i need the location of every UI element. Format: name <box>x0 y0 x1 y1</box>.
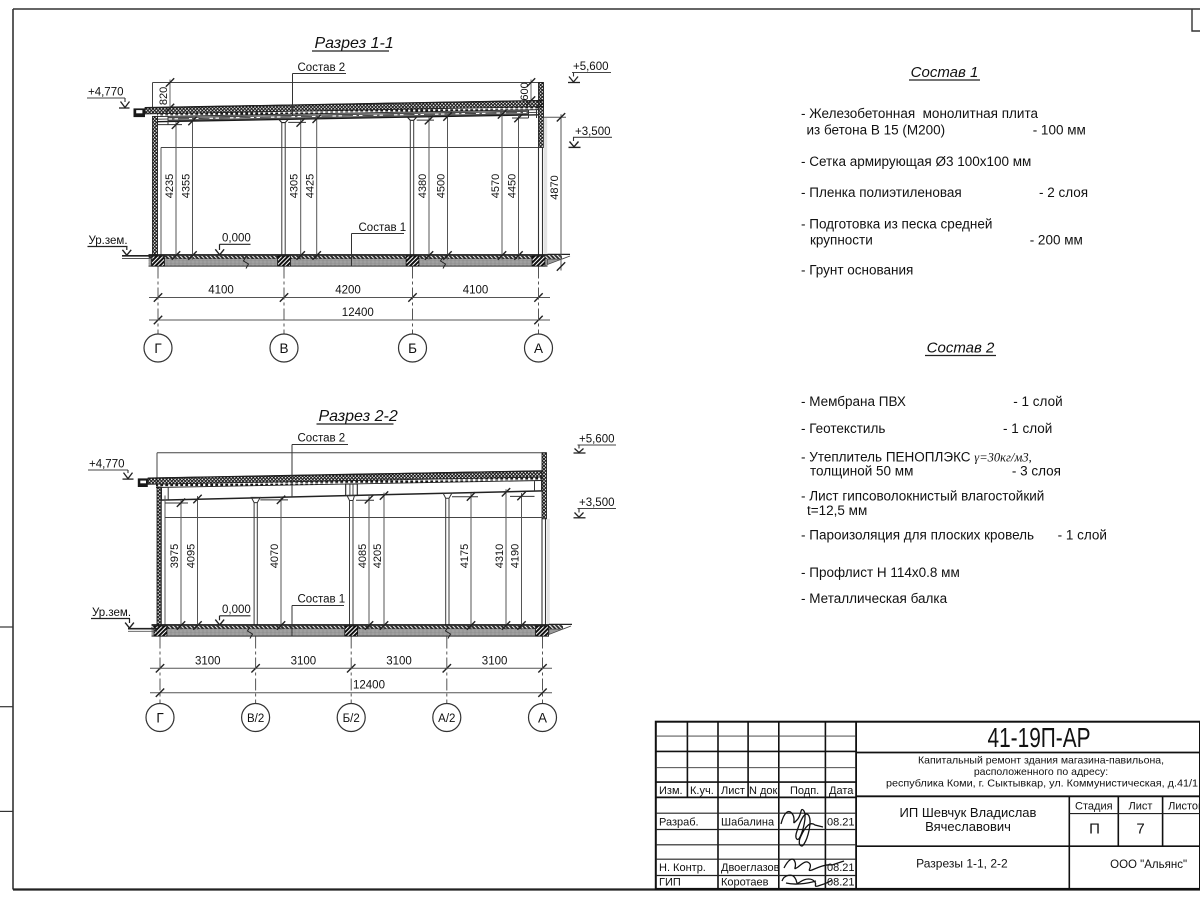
svg-text:4100: 4100 <box>463 285 489 297</box>
svg-text:Лист: Лист <box>721 785 745 797</box>
svg-text:крупности: крупности <box>810 232 873 247</box>
svg-text:08.21: 08.21 <box>827 877 855 889</box>
svg-text:расположенного по адресу:: расположенного по адресу: <box>974 766 1108 778</box>
svg-text:- Профлист Н 114х0.8 мм: - Профлист Н 114х0.8 мм <box>801 565 960 580</box>
svg-text:4380: 4380 <box>417 174 429 198</box>
svg-text:4095: 4095 <box>185 544 197 568</box>
svg-text:Подп.: Подп. <box>790 785 819 797</box>
svg-text:+4,770: +4,770 <box>89 459 125 471</box>
svg-text:Шабалина: Шабалина <box>721 816 775 828</box>
svg-text:4305: 4305 <box>289 174 301 198</box>
svg-text:из бетона В 15 (М200): из бетона В 15 (М200) <box>807 122 946 137</box>
svg-text:Состав 2: Состав 2 <box>298 62 346 74</box>
svg-text:Стадия: Стадия <box>1075 801 1113 813</box>
svg-text:3100: 3100 <box>195 655 221 667</box>
svg-text:4100: 4100 <box>208 285 234 297</box>
svg-text:Г: Г <box>156 711 164 726</box>
svg-text:N док.: N док. <box>749 785 780 797</box>
svg-text:4355: 4355 <box>180 174 192 198</box>
svg-text:12400: 12400 <box>353 680 385 692</box>
svg-text:Изм.: Изм. <box>659 785 683 797</box>
svg-text:820: 820 <box>158 87 170 105</box>
svg-text:Листов: Листов <box>1168 801 1200 813</box>
svg-text:ООО "Альянс": ООО "Альянс" <box>1110 859 1187 871</box>
svg-text:4870: 4870 <box>549 175 561 199</box>
svg-text:Коротаев: Коротаев <box>721 877 769 889</box>
svg-text:- Подготовка из песка средней: - Подготовка из песка средней <box>801 216 992 231</box>
svg-text:ИП Шевчук Владислав: ИП Шевчук Владислав <box>900 805 1037 820</box>
svg-text:Состав 2: Состав 2 <box>927 340 995 357</box>
svg-text:4070: 4070 <box>269 544 281 568</box>
svg-text:- Грунт основания: - Грунт основания <box>801 263 913 278</box>
svg-text:0,000: 0,000 <box>222 233 251 245</box>
svg-text:- Лист гипсоволокнистый влагос: - Лист гипсоволокнистый влагостойкий <box>801 489 1044 504</box>
svg-text:Лист: Лист <box>1129 801 1153 813</box>
svg-text:Состав 1: Состав 1 <box>359 222 407 234</box>
svg-text:+3,500: +3,500 <box>575 126 611 138</box>
svg-text:7: 7 <box>1136 821 1144 838</box>
svg-text:+3,500: +3,500 <box>579 497 615 509</box>
svg-text:4235: 4235 <box>164 174 176 198</box>
svg-text:0,000: 0,000 <box>222 604 251 616</box>
svg-text:Вячеславович: Вячеславович <box>925 819 1011 834</box>
svg-text:- 3 слоя: - 3 слоя <box>1012 464 1061 479</box>
svg-text:В/2: В/2 <box>247 713 264 725</box>
svg-text:К.уч.: К.уч. <box>690 785 714 797</box>
svg-text:+5,600: +5,600 <box>579 434 615 446</box>
svg-text:Состав 1: Состав 1 <box>298 594 346 606</box>
svg-text:- Пароизоляция для плоских кро: - Пароизоляция для плоских кровель <box>801 528 1034 543</box>
svg-text:08.21: 08.21 <box>827 862 855 874</box>
svg-text:А: А <box>534 341 543 356</box>
svg-text:Двоеглазов: Двоеглазов <box>721 862 780 874</box>
svg-text:Ур.зем.: Ур.зем. <box>89 235 128 247</box>
svg-text:Состав 1: Состав 1 <box>911 64 979 81</box>
svg-text:А: А <box>538 711 547 726</box>
svg-text:- Сетка армирующая Ø3 100х100: - Сетка армирующая Ø3 100х100 мм <box>801 154 1031 169</box>
svg-text:4310: 4310 <box>494 544 506 568</box>
svg-text:4450: 4450 <box>506 174 518 198</box>
svg-text:+5,600: +5,600 <box>573 61 609 73</box>
svg-text:республика Коми, г. Сыктывкар,: республика Коми, г. Сыктывкар, ул. Комму… <box>886 778 1198 790</box>
svg-text:4570: 4570 <box>490 174 502 198</box>
svg-text:+4,770: +4,770 <box>88 87 124 99</box>
svg-text:12400: 12400 <box>342 307 374 319</box>
svg-text:3100: 3100 <box>386 655 412 667</box>
svg-text:А/2: А/2 <box>438 713 455 725</box>
svg-text:Б/2: Б/2 <box>343 713 360 725</box>
svg-text:Состав 2: Состав 2 <box>298 433 346 445</box>
svg-text:t=12,5 мм: t=12,5 мм <box>807 503 867 518</box>
svg-text:Н. Контр.: Н. Контр. <box>659 862 706 874</box>
svg-text:Дата: Дата <box>829 785 854 797</box>
svg-text:Разраб.: Разраб. <box>659 816 699 828</box>
svg-text:Разрез 2-2: Разрез 2-2 <box>319 408 398 425</box>
svg-text:4085: 4085 <box>357 544 369 568</box>
svg-text:- 100 мм: - 100 мм <box>1033 122 1086 137</box>
svg-text:- Пленка полиэтиленовая: - Пленка полиэтиленовая <box>801 185 962 200</box>
svg-text:4175: 4175 <box>459 544 471 568</box>
svg-text:08.21: 08.21 <box>827 816 855 828</box>
svg-text:600: 600 <box>519 82 531 100</box>
svg-text:Ур.зем.: Ур.зем. <box>92 607 131 619</box>
svg-text:толщиной 50 мм: толщиной 50 мм <box>810 464 913 479</box>
svg-text:4500: 4500 <box>435 174 447 198</box>
svg-text:В: В <box>279 341 288 356</box>
svg-text:4205: 4205 <box>372 544 384 568</box>
svg-text:- Железобетонная монолитная п: - Железобетонная монолитная плита <box>801 106 1038 121</box>
svg-text:- 1 слой: - 1 слой <box>1013 394 1062 409</box>
svg-text:41-19П-АР: 41-19П-АР <box>988 722 1091 753</box>
svg-text:- Мембрана ПВХ: - Мембрана ПВХ <box>801 394 906 409</box>
svg-text:- Металлическая балка: - Металлическая балка <box>801 591 948 606</box>
svg-text:Разрез 1-1: Разрез 1-1 <box>315 35 394 52</box>
svg-text:Разрезы 1-1, 2-2: Разрезы 1-1, 2-2 <box>916 857 1008 871</box>
svg-text:3975: 3975 <box>169 544 181 568</box>
svg-text:3100: 3100 <box>482 655 508 667</box>
svg-text:П: П <box>1089 821 1100 838</box>
svg-text:- 1 слой: - 1 слой <box>1003 421 1052 436</box>
svg-text:Капитальный ремонт здания мага: Капитальный ремонт здания магазина-павил… <box>918 755 1164 767</box>
svg-text:- Утеплитель ПЕНОПЛЭКС γ=30кг/: - Утеплитель ПЕНОПЛЭКС γ=30кг/м3, <box>801 450 1032 465</box>
svg-text:Б: Б <box>408 341 417 356</box>
svg-text:4200: 4200 <box>335 285 361 297</box>
svg-text:- 1 слой: - 1 слой <box>1058 528 1107 543</box>
svg-text:- 2 слоя: - 2 слоя <box>1039 185 1088 200</box>
svg-text:- Геотекстиль: - Геотекстиль <box>801 421 885 436</box>
svg-text:- 200 мм: - 200 мм <box>1030 232 1083 247</box>
svg-text:4190: 4190 <box>509 544 521 568</box>
svg-text:3100: 3100 <box>291 655 317 667</box>
svg-text:ГИП: ГИП <box>659 877 681 889</box>
svg-text:4425: 4425 <box>305 174 317 198</box>
svg-text:Г: Г <box>154 341 162 356</box>
